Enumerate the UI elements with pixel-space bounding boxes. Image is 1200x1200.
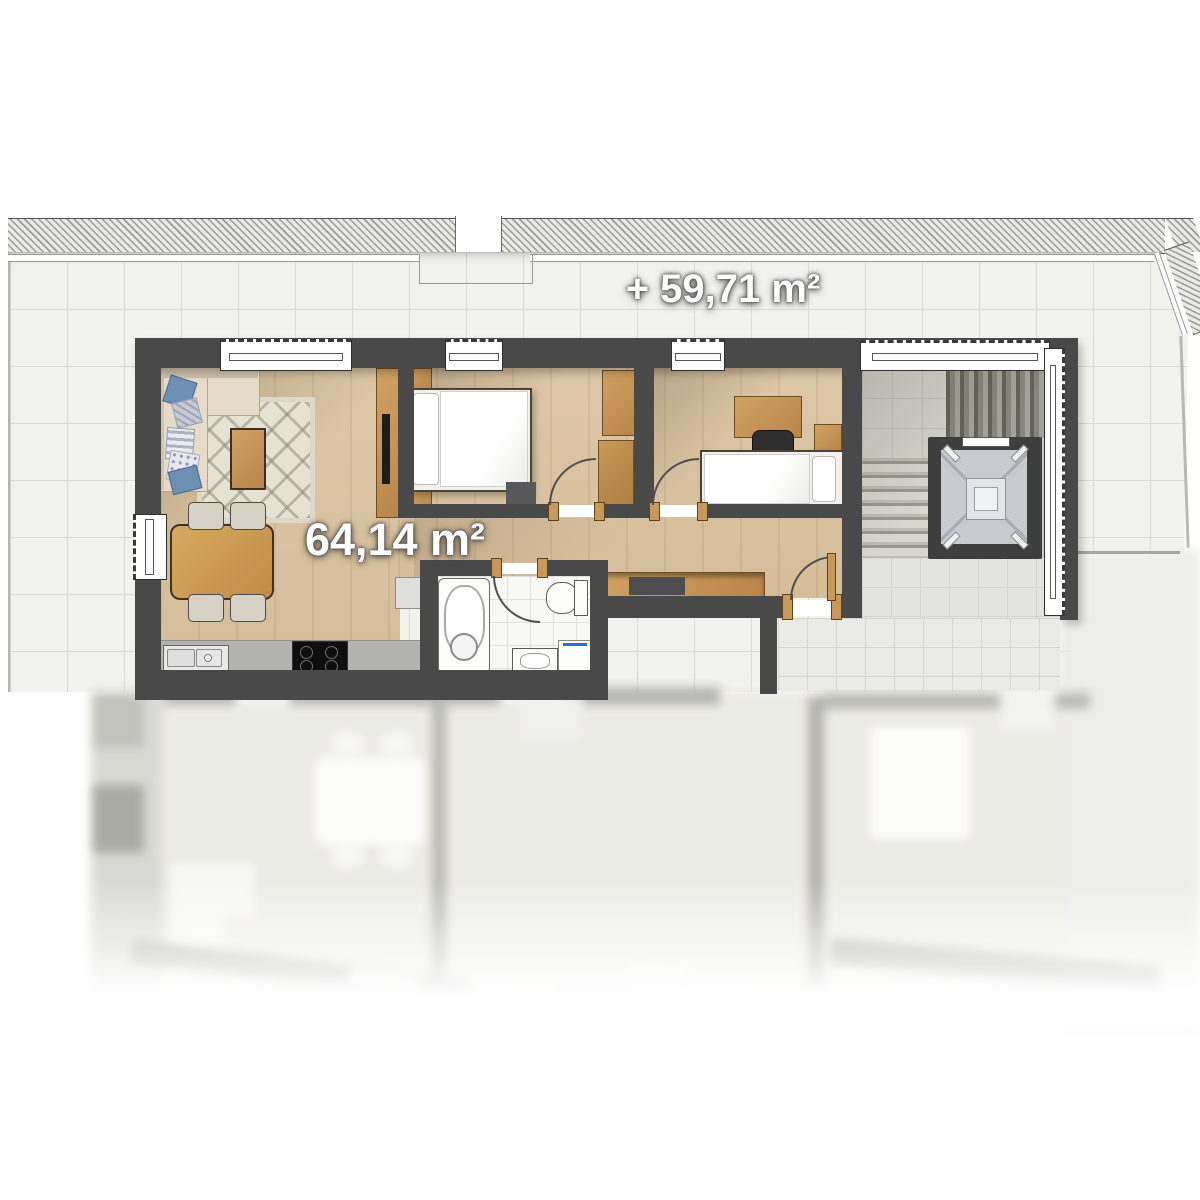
window-glazing	[449, 353, 498, 361]
wall-bottom-left-block	[135, 670, 608, 700]
tv-screen	[382, 414, 390, 484]
wall-hall-bottom-a	[608, 596, 790, 618]
bed-pillow	[413, 393, 439, 485]
double-bed	[408, 388, 532, 492]
window-bedroom1	[445, 339, 503, 371]
elevator-center-inner	[974, 487, 998, 511]
elevator-shaft	[928, 437, 1042, 559]
lower-chair	[382, 847, 412, 867]
dining-chair	[230, 502, 266, 530]
kitchen-faucet	[204, 654, 212, 662]
bed-foot-mat	[506, 482, 536, 506]
bathtub	[438, 578, 490, 674]
wall-bath-left	[420, 560, 438, 672]
bathtub-drain	[450, 633, 478, 661]
lower-bed-blob	[870, 727, 970, 839]
wall-stair-left	[842, 338, 862, 618]
lower-left-wall-dark	[92, 785, 144, 853]
wall-left-upper	[135, 338, 161, 518]
lower-chair	[332, 847, 362, 867]
lower-chair	[332, 733, 362, 753]
lower-chair	[382, 733, 412, 753]
fade-overlay	[70, 880, 1200, 1030]
elevator-door	[962, 437, 1010, 447]
wardrobe-upper	[602, 370, 636, 436]
dining-chair	[188, 502, 224, 530]
site-wall-hatch-band	[8, 218, 1165, 254]
bed-duvet	[440, 391, 528, 487]
door-post	[537, 558, 548, 578]
parapet-line-right	[530, 254, 1154, 262]
wall-bath-top-b	[546, 560, 590, 576]
window-stairwell-right	[1044, 348, 1065, 616]
window-bedroom2	[671, 339, 725, 371]
burner	[300, 646, 313, 659]
washer-accent-stripe	[563, 643, 587, 646]
burner	[325, 646, 338, 659]
stair-landing-lower	[862, 558, 1060, 618]
dining-table	[170, 524, 274, 600]
floor-plan-canvas: + 59,71 m² 64,14 m²	[0, 0, 1200, 1200]
kitchen-sink-unit	[163, 645, 229, 671]
wall-living-bedroom1	[398, 368, 414, 518]
coffee-table	[230, 428, 266, 490]
lower-dining-table	[315, 757, 425, 845]
wall-corridor-c	[706, 504, 842, 518]
dining-chair	[230, 594, 266, 622]
bed-pillow	[812, 456, 836, 502]
dining-chair	[188, 594, 224, 622]
terrace-area-label: + 59,71 m²	[598, 264, 848, 314]
window-living-left	[133, 514, 167, 580]
door-opening-bedroom1	[557, 505, 594, 517]
window-glazing	[145, 519, 154, 575]
lower-fixture-blob-2	[1000, 693, 1055, 731]
window-living	[220, 339, 352, 371]
wall-corridor-b	[603, 504, 649, 518]
single-bed	[700, 450, 844, 510]
window-stairwell-top	[860, 340, 1050, 371]
wall-bedroom1-bedroom2	[634, 368, 654, 504]
wardrobe-lower	[598, 440, 634, 506]
nightstand	[814, 424, 842, 452]
terrace-edge-line-right	[1062, 551, 1180, 554]
lower-fixture-blob	[518, 695, 583, 740]
sink-bowl-left	[167, 649, 195, 667]
door-opening-bedroom2	[658, 505, 697, 517]
parapet-notch	[419, 254, 533, 284]
sink-basin	[520, 653, 550, 669]
wall-bath-right	[590, 560, 608, 700]
lower-left-wall-mid	[92, 693, 144, 748]
entrance-landing-floor	[778, 618, 1060, 690]
wall-landing-left-stub	[760, 618, 777, 694]
bed-duvet	[704, 454, 810, 504]
parapet-line-left	[8, 254, 420, 262]
window-glazing	[872, 353, 1037, 361]
door-opening-bathroom	[500, 563, 537, 574]
window-glazing	[1050, 365, 1056, 599]
stairs-up-treads	[946, 368, 1046, 438]
window-glazing	[675, 353, 721, 361]
entrance-door-leaf	[827, 553, 836, 601]
apartment-area-label: 64,14 m²	[288, 512, 502, 568]
toilet-tank	[574, 580, 588, 616]
window-glazing	[229, 353, 343, 361]
door-opening-entrance	[791, 600, 831, 616]
hall-wardrobe-inset	[629, 577, 685, 595]
